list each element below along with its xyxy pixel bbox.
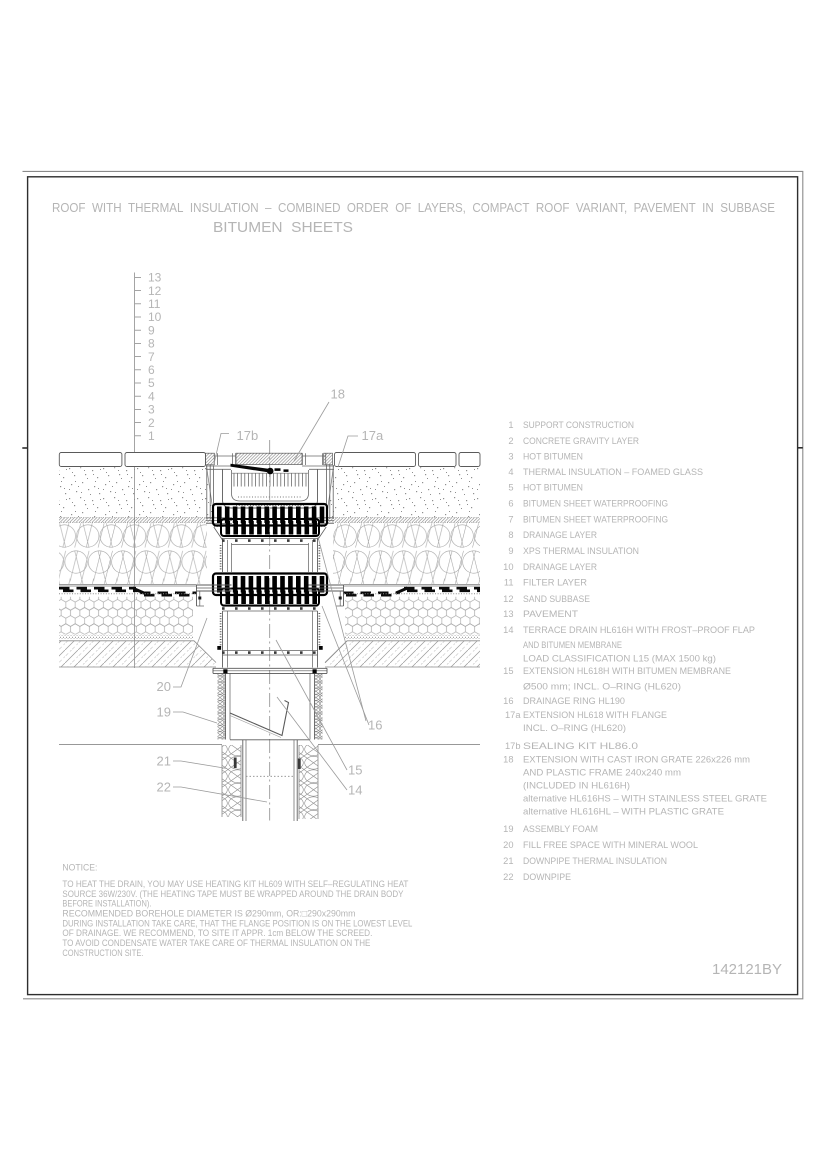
svg-text:10: 10: [503, 562, 513, 572]
svg-text:TO AVOID CONDENSATE WATER TAKE: TO AVOID CONDENSATE WATER TAKE CARE OF T…: [62, 938, 370, 948]
svg-text:ASSEMBLY FOAM: ASSEMBLY FOAM: [523, 824, 598, 834]
svg-text:11: 11: [504, 578, 514, 588]
svg-text:17b: 17b: [237, 428, 259, 443]
svg-text:DRAINAGE LAYER: DRAINAGE LAYER: [523, 562, 597, 572]
svg-text:17b: 17b: [505, 741, 521, 751]
svg-text:9: 9: [508, 546, 513, 556]
svg-text:19: 19: [503, 824, 513, 834]
svg-text:HOT BITUMEN: HOT BITUMEN: [523, 483, 583, 493]
svg-text:HOT BITUMEN: HOT BITUMEN: [523, 451, 583, 461]
svg-text:13: 13: [503, 609, 513, 619]
svg-text:FILL FREE SPACE WITH MINERAL W: FILL FREE SPACE WITH MINERAL WOOL: [523, 840, 698, 850]
svg-text:FILTER LAYER: FILTER LAYER: [523, 578, 587, 588]
svg-text:20: 20: [157, 679, 171, 694]
svg-text:18: 18: [331, 387, 345, 402]
svg-text:TO HEAT THE DRAIN, YOU MAY USE: TO HEAT THE DRAIN, YOU MAY USE HEATING K…: [62, 879, 409, 889]
svg-text:2: 2: [148, 416, 155, 430]
svg-text:DRAINAGE LAYER: DRAINAGE LAYER: [523, 530, 597, 540]
svg-text:12: 12: [503, 594, 513, 604]
svg-text:SEALING KIT HL86.0: SEALING KIT HL86.0: [523, 741, 638, 751]
svg-text:5: 5: [508, 483, 513, 493]
svg-text:6: 6: [148, 363, 155, 377]
svg-text:alternative HL616HL – WITH PLA: alternative HL616HL – WITH PLASTIC GRATE: [523, 807, 724, 817]
svg-text:21: 21: [157, 754, 171, 769]
svg-text:BITUMEN SHEET WATERPROOFING: BITUMEN SHEET WATERPROOFING: [523, 499, 668, 509]
svg-text:RECOMMENDED BOREHOLE DIAMETER: RECOMMENDED BOREHOLE DIAMETER IS Ø290mm,…: [62, 909, 355, 919]
svg-text:DOWNPIPE: DOWNPIPE: [523, 872, 571, 882]
svg-text:2: 2: [508, 436, 513, 446]
svg-text:14: 14: [348, 783, 362, 798]
svg-text:SUPPORT CONSTRUCTION: SUPPORT CONSTRUCTION: [523, 420, 634, 430]
svg-text:142121BY: 142121BY: [712, 962, 782, 978]
svg-text:8: 8: [148, 337, 155, 351]
svg-text:18: 18: [503, 755, 513, 765]
svg-text:4: 4: [148, 389, 155, 403]
svg-text:CONCRETE GRAVITY LAYER: CONCRETE GRAVITY LAYER: [523, 436, 639, 446]
svg-text:TERRACE DRAIN HL616H WITH FROS: TERRACE DRAIN HL616H WITH FROST–PROOF FL…: [523, 625, 755, 635]
svg-text:PAVEMENT: PAVEMENT: [523, 609, 578, 619]
svg-text:10: 10: [148, 310, 162, 324]
svg-text:22: 22: [503, 872, 513, 882]
svg-text:14: 14: [503, 625, 513, 635]
svg-text:SOURCE 36W/230V. (THE HEATING: SOURCE 36W/230V. (THE HEATING TAPE MUST …: [62, 889, 403, 899]
svg-text:(INCLUDED IN HL616H): (INCLUDED IN HL616H): [523, 780, 630, 790]
svg-text:LOAD CLASSIFICATION L15 (MAX 1: LOAD CLASSIFICATION L15 (MAX 1500 kg): [523, 653, 716, 663]
svg-text:7: 7: [148, 350, 155, 364]
svg-text:15: 15: [348, 763, 362, 778]
svg-text:16: 16: [503, 696, 513, 706]
svg-text:AND PLASTIC FRAME 240x240 mm: AND PLASTIC FRAME 240x240 mm: [523, 767, 681, 777]
svg-text:NOTICE:: NOTICE:: [62, 863, 97, 873]
svg-text:8: 8: [508, 530, 513, 540]
svg-text:1: 1: [508, 420, 513, 430]
svg-text:EXTENSION WITH CAST IRON GRATE: EXTENSION WITH CAST IRON GRATE 226x226 m…: [523, 755, 750, 765]
svg-text:9: 9: [148, 323, 155, 337]
svg-text:7: 7: [508, 515, 513, 525]
svg-text:DOWNPIPE THERMAL INSULATION: DOWNPIPE THERMAL INSULATION: [523, 856, 667, 866]
svg-text:EXTENSION HL618H WITH BITUMEN: EXTENSION HL618H WITH BITUMEN MEMBRANE: [523, 666, 731, 676]
svg-text:DRAINAGE RING HL190: DRAINAGE RING HL190: [523, 696, 625, 706]
svg-text:BEFORE INSTALLATION).: BEFORE INSTALLATION).: [62, 899, 151, 909]
svg-text:4: 4: [508, 467, 513, 477]
svg-text:SAND SUBBASE: SAND SUBBASE: [523, 594, 590, 604]
svg-text:19: 19: [157, 705, 171, 720]
svg-text:3: 3: [508, 451, 513, 461]
svg-text:3: 3: [148, 403, 155, 417]
svg-text:20: 20: [503, 840, 513, 850]
svg-text:13: 13: [148, 271, 162, 285]
svg-text:1: 1: [148, 429, 155, 443]
svg-text:XPS THERMAL INSULATION: XPS THERMAL INSULATION: [523, 546, 639, 556]
svg-text:15: 15: [503, 666, 513, 676]
svg-text:17a: 17a: [505, 710, 521, 720]
svg-text:BITUMEN SHEET WATERPROOFING: BITUMEN SHEET WATERPROOFING: [523, 515, 668, 525]
svg-text:11: 11: [148, 297, 161, 311]
svg-text:CONSTRUCTION SITE.: CONSTRUCTION SITE.: [62, 948, 143, 958]
svg-text:BITUMEN SHEETS: BITUMEN SHEETS: [213, 219, 353, 236]
svg-text:22: 22: [157, 780, 171, 795]
svg-text:alternative HL616HS – WITH STA: alternative HL616HS – WITH STAINLESS STE…: [523, 794, 767, 804]
svg-text:THERMAL INSULATION – FOAMED GL: THERMAL INSULATION – FOAMED GLASS: [523, 467, 703, 477]
svg-text:DURING INSTALLATION TAKE CARE,: DURING INSTALLATION TAKE CARE, THAT THE …: [62, 918, 412, 928]
svg-text:17a: 17a: [362, 428, 384, 443]
svg-text:6: 6: [508, 499, 513, 509]
svg-text:16: 16: [368, 718, 382, 733]
svg-text:OF DRAINAGE. WE RECOMMEND, TO: OF DRAINAGE. WE RECOMMEND, TO SITE IT AP…: [62, 928, 372, 938]
svg-text:ROOF WITH THERMAL INSULATIO: ROOF WITH THERMAL INSULATION – COMBINED …: [52, 201, 775, 215]
svg-text:Ø500 mm; INCL. O–RING (HL620): Ø500 mm; INCL. O–RING (HL620): [523, 682, 681, 692]
svg-text:INCL. O–RING (HL620): INCL. O–RING (HL620): [523, 723, 626, 733]
svg-text:5: 5: [148, 376, 155, 390]
svg-text:21: 21: [503, 856, 513, 866]
svg-text:12: 12: [148, 284, 162, 298]
svg-text:AND BITUMEN MEMBRANE: AND BITUMEN MEMBRANE: [523, 640, 622, 650]
svg-text:EXTENSION HL618 WITH FLANGE: EXTENSION HL618 WITH FLANGE: [523, 710, 667, 720]
